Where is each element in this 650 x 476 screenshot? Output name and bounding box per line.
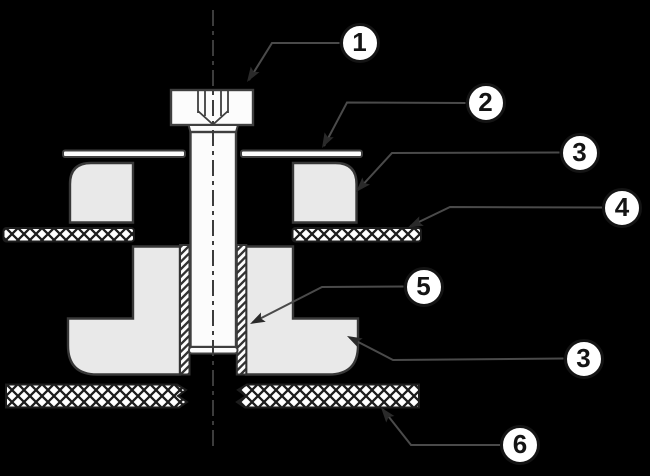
- callout-2: 2: [466, 83, 506, 123]
- callout-6: 6: [500, 425, 540, 465]
- callout-5: 5: [404, 267, 444, 307]
- diagram-canvas: 1 2 3 4 5 3 6: [0, 0, 650, 476]
- callout-3-lower: 3: [564, 339, 604, 379]
- mount-assembly-drawing: [0, 0, 650, 476]
- callout-3-upper: 3: [560, 133, 600, 173]
- callout-4: 4: [602, 188, 642, 228]
- callout-1: 1: [340, 23, 380, 63]
